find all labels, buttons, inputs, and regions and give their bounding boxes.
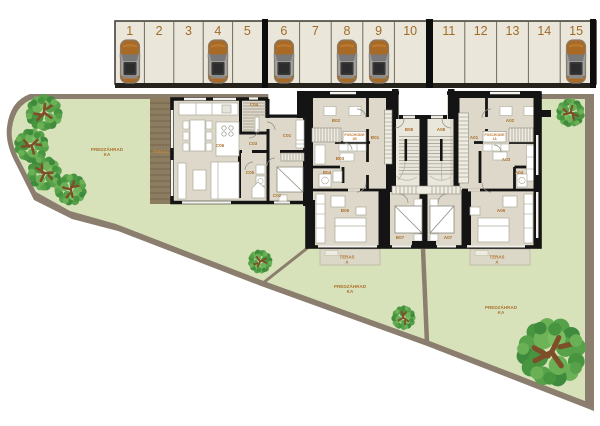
svg-text:C03: C03 [249,141,258,146]
svg-text:10: 10 [403,24,417,38]
svg-text:12: 12 [474,24,488,38]
svg-text:C01: C01 [283,133,292,138]
svg-text:A02: A02 [506,118,515,123]
svg-text:5: 5 [244,24,251,38]
svg-text:4: 4 [214,24,221,38]
svg-text:KA: KA [498,310,505,315]
svg-text:A06: A06 [497,208,506,213]
svg-text:A08: A08 [437,127,446,132]
svg-text:C05: C05 [246,170,255,175]
svg-text:3: 3 [185,24,192,38]
svg-text:11: 11 [442,24,455,38]
svg-text:KA: KA [347,289,354,294]
svg-text:KA: KA [104,152,111,157]
svg-text:6: 6 [280,24,287,38]
svg-text:14: 14 [537,24,551,38]
svg-text:2: 2 [156,24,163,38]
svg-text:C02: C02 [273,193,282,198]
svg-text:B04: B04 [323,170,332,175]
svg-text:7: 7 [312,24,319,38]
svg-text:B02: B02 [332,118,341,123]
svg-text:A07: A07 [444,235,453,240]
svg-text:A04: A04 [515,170,524,175]
svg-text:B06: B06 [341,208,350,213]
svg-text:1B: 1B [352,137,357,141]
svg-text:A01: A01 [470,135,479,140]
svg-text:B07: B07 [396,235,405,240]
svg-text:B08: B08 [405,127,414,132]
svg-text:1A: 1A [492,137,497,141]
svg-text:B03: B03 [336,156,345,161]
svg-text:B01: B01 [371,135,380,140]
svg-text:9: 9 [375,24,382,38]
svg-text:15: 15 [569,24,583,38]
svg-text:A03: A03 [502,157,511,162]
svg-text:8: 8 [344,24,351,38]
svg-text:1: 1 [126,24,133,38]
svg-text:C04: C04 [250,102,259,107]
svg-text:C06: C06 [216,143,225,148]
svg-text:13: 13 [506,24,520,38]
svg-text:TERASA: TERASA [153,149,170,154]
